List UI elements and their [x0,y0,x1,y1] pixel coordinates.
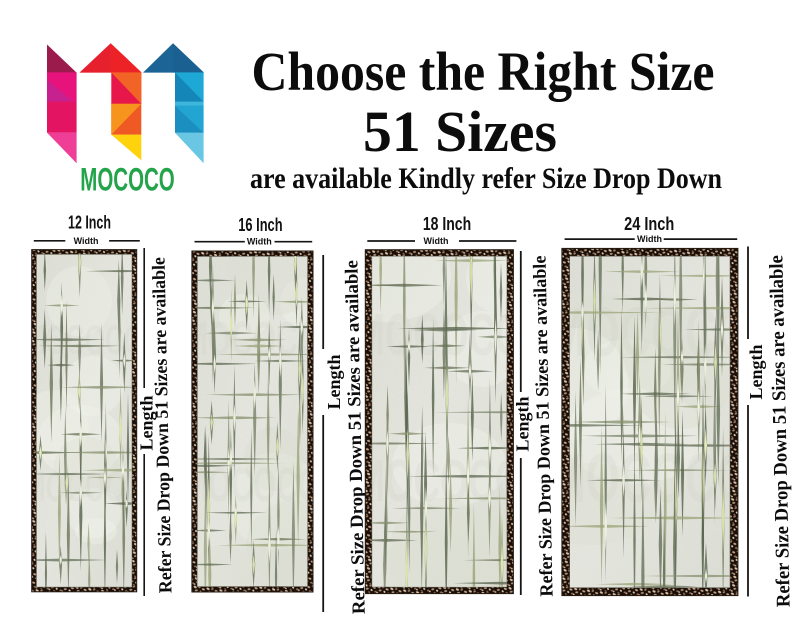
svg-text:Width: Width [247,237,272,247]
svg-text:MOCOCO: MOCOCO [355,302,524,368]
svg-text:Length: Length [513,396,533,451]
svg-text:Width: Width [424,236,449,246]
svg-text:MOCOCO: MOCOCO [80,161,175,197]
svg-text:Width: Width [637,234,662,244]
svg-text:Length: Length [746,344,766,399]
svg-text:24 Inch: 24 Inch [624,214,674,234]
svg-text:Refer Size Drop Down 51 Sizes: Refer Size Drop Down 51 Sizes are availa… [766,255,794,608]
svg-text:16 Inch: 16 Inch [238,215,282,235]
svg-text:MOCOCO: MOCOCO [355,448,524,514]
svg-text:are available Kindly refer Siz: are available Kindly refer Size Drop Dow… [250,162,722,195]
svg-text:Refer Size Drop Down 51 Sizes: Refer Size Drop Down 51 Sizes are availa… [149,257,176,593]
svg-text:Choose the Right Size: Choose the Right Size [252,41,715,102]
svg-text:51 Sizes: 51 Sizes [363,99,557,164]
svg-text:Refer Size Drop Down 51 Sizes: Refer Size Drop Down 51 Sizes are availa… [530,255,557,596]
svg-text:Length: Length [324,354,344,409]
svg-text:18 Inch: 18 Inch [423,214,471,234]
svg-text:12 Inch: 12 Inch [68,213,111,233]
svg-text:MOCOCO: MOCOCO [550,293,751,371]
svg-text:Width: Width [74,236,99,246]
